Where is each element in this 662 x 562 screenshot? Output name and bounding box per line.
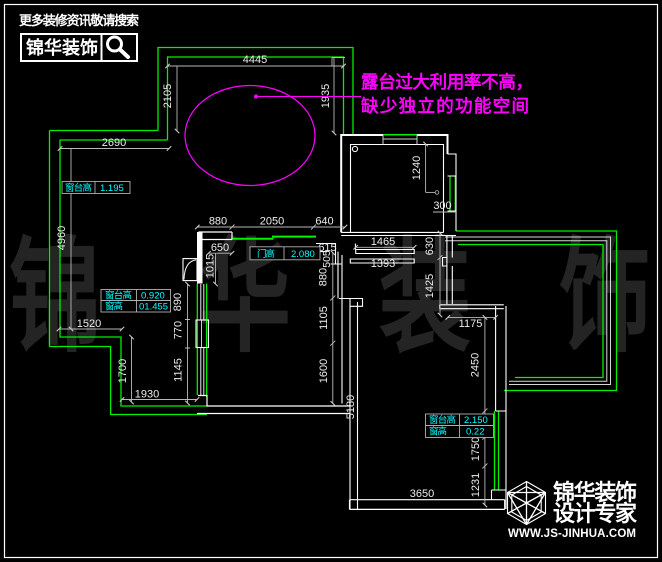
svg-text:锦华装饰: 锦华装饰 — [26, 37, 98, 58]
svg-text:01.455: 01.455 — [139, 302, 168, 313]
svg-text:WWW.JS-JINHUA.COM: WWW.JS-JINHUA.COM — [508, 528, 636, 540]
svg-text:1393: 1393 — [371, 258, 395, 270]
svg-text:缺少独立的功能空间: 缺少独立的功能空间 — [361, 96, 529, 116]
svg-text:1231: 1231 — [470, 473, 482, 497]
svg-text:2050: 2050 — [260, 216, 284, 228]
svg-text:1425: 1425 — [424, 274, 436, 298]
svg-text:窗高: 窗高 — [429, 426, 447, 438]
svg-text:1015: 1015 — [205, 254, 217, 278]
svg-text:1930: 1930 — [135, 389, 159, 401]
svg-text:505: 505 — [321, 250, 333, 268]
svg-text:1175: 1175 — [459, 318, 483, 330]
svg-text:4960: 4960 — [56, 226, 68, 250]
svg-text:890: 890 — [172, 293, 184, 311]
svg-text:露台过大利用率不高，: 露台过大利用率不高， — [361, 72, 533, 92]
svg-text:设计专家: 设计专家 — [553, 501, 638, 526]
svg-text:1465: 1465 — [371, 236, 395, 248]
svg-text:1145: 1145 — [173, 358, 185, 382]
svg-text:770: 770 — [173, 321, 185, 339]
svg-text:1.195: 1.195 — [100, 183, 124, 194]
svg-text:2450: 2450 — [470, 353, 482, 377]
svg-text:2.150: 2.150 — [464, 415, 488, 426]
svg-text:640: 640 — [315, 216, 333, 228]
svg-text:630: 630 — [424, 237, 436, 255]
svg-text:2.080: 2.080 — [291, 249, 315, 260]
svg-text:窗高: 窗高 — [105, 301, 123, 313]
svg-text:1750: 1750 — [470, 437, 482, 461]
svg-text:0.22: 0.22 — [466, 427, 485, 438]
svg-text:880: 880 — [209, 216, 227, 228]
svg-text:650: 650 — [211, 242, 229, 254]
svg-text:窗台高: 窗台高 — [105, 290, 132, 302]
svg-text:1520: 1520 — [77, 318, 101, 330]
svg-text:门高: 门高 — [257, 248, 275, 260]
svg-text:5180: 5180 — [345, 395, 357, 419]
svg-text:300: 300 — [433, 200, 451, 212]
svg-text:4445: 4445 — [243, 54, 267, 66]
svg-text:2690: 2690 — [102, 137, 126, 149]
svg-text:1600: 1600 — [318, 359, 330, 383]
svg-text:饰: 饰 — [559, 229, 651, 368]
svg-text:3650: 3650 — [410, 488, 434, 500]
svg-text:窗台高: 窗台高 — [65, 182, 92, 194]
svg-text:0.920: 0.920 — [141, 291, 165, 302]
svg-text:1700: 1700 — [117, 359, 129, 383]
svg-text:880: 880 — [318, 268, 330, 286]
svg-text:更多装修资讯敬请搜索: 更多装修资讯敬请搜索 — [19, 13, 139, 28]
svg-text:1240: 1240 — [411, 156, 423, 180]
svg-text:2105: 2105 — [162, 84, 174, 108]
svg-text:1105: 1105 — [318, 306, 330, 330]
svg-text:窗台高: 窗台高 — [429, 414, 456, 426]
